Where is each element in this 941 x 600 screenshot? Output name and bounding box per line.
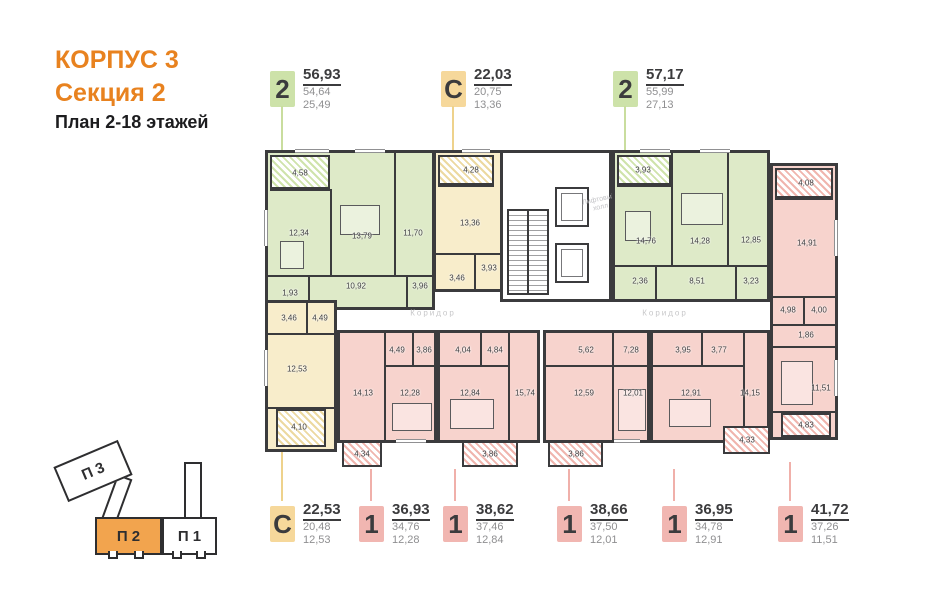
area-total: 56,93	[303, 66, 341, 86]
legend-apartment-studio-top[interactable]: С 22,03 20,75 13,36	[441, 66, 512, 111]
area-kitchen: 12,84	[476, 534, 514, 547]
apartment-areas: 36,93 34,76 12,28	[392, 501, 430, 546]
room-area: 14,15	[740, 389, 760, 398]
legend-apartment-1c[interactable]: 1 38,66 37,50 12,01	[557, 501, 628, 546]
leader-line	[281, 452, 283, 501]
apartment-type-badge: 2	[270, 71, 295, 107]
room-area: 13,79	[352, 232, 372, 241]
wall	[330, 189, 332, 275]
room-area: 14,91	[797, 239, 817, 248]
leader-line	[673, 469, 675, 501]
wall	[612, 333, 614, 440]
wall	[727, 153, 729, 265]
room-area: 12,53	[287, 365, 307, 374]
room-area: 3,77	[711, 346, 727, 355]
room-area: 3,86	[568, 450, 584, 459]
area-living: 20,48	[303, 521, 341, 534]
apartment-type-badge: 1	[662, 506, 687, 542]
apartment-areas: 56,93 54,64 25,49	[303, 66, 341, 111]
room-area: 12,28	[400, 389, 420, 398]
area-total: 22,53	[303, 501, 341, 521]
room-area: 4,49	[389, 346, 405, 355]
room-area: 4,33	[739, 436, 755, 445]
legend-apartment-1a[interactable]: 1 36,93 34,76 12,28	[359, 501, 430, 546]
area-living: 37,50	[590, 521, 628, 534]
area-kitchen: 13,36	[474, 99, 512, 112]
wall	[480, 333, 482, 365]
wall	[384, 365, 434, 367]
area-total: 38,62	[476, 501, 514, 521]
legend-apartment-studio-bottom[interactable]: С 22,53 20,48 12,53	[270, 501, 341, 546]
apartment-type-badge: С	[441, 71, 466, 107]
bed-furniture	[340, 205, 380, 235]
building-title: КОРПУС 3	[55, 44, 208, 77]
room-area: 3,46	[449, 274, 465, 283]
minimap-notch	[134, 551, 144, 559]
window	[264, 210, 268, 246]
minimap-notch	[108, 551, 118, 559]
area-living: 37,46	[476, 521, 514, 534]
wall	[773, 324, 835, 326]
room-area: 14,13	[353, 389, 373, 398]
stair-elevator-core	[500, 150, 612, 302]
room-area: 1,93	[282, 289, 298, 298]
area-living: 34,78	[695, 521, 733, 534]
minimap-section-p1[interactable]: П 1	[162, 517, 217, 555]
area-living: 37,26	[811, 521, 849, 534]
room-area: 4,28	[463, 166, 479, 175]
apartment-type-badge: 1	[778, 506, 803, 542]
bed-furniture	[681, 193, 723, 225]
room-area: 4,58	[292, 169, 308, 178]
wall	[436, 253, 508, 255]
wall	[546, 365, 647, 367]
room-area: 3,93	[481, 264, 497, 273]
legend-apartment-2a[interactable]: 2 56,93 54,64 25,49	[270, 66, 341, 111]
room-area: 3,86	[482, 450, 498, 459]
apartment-areas: 22,53 20,48 12,53	[303, 501, 341, 546]
section-title: Секция 2	[55, 77, 208, 110]
area-kitchen: 12,91	[695, 534, 733, 547]
window	[834, 220, 838, 256]
leader-line	[452, 106, 454, 150]
room-area: 4,98	[780, 306, 796, 315]
wall	[735, 265, 737, 299]
room-area: 2,36	[632, 277, 648, 286]
window	[295, 149, 329, 153]
room-area: 8,51	[689, 277, 705, 286]
wall	[653, 365, 743, 367]
room-area: 4,10	[291, 423, 307, 432]
apartment-1c-plan[interactable]: 5,62 7,28 12,59 12,01	[543, 330, 650, 443]
room-area: 4,84	[487, 346, 503, 355]
minimap-section-label: П 1	[178, 528, 201, 545]
apartment-2b-plan[interactable]: 3,93 14,76 14,28 12,85 2,36 8,51 3,23	[612, 150, 770, 302]
room-area: 12,59	[574, 389, 594, 398]
apartment-areas: 36,95 34,78 12,91	[695, 501, 733, 546]
room-area: 3,96	[412, 282, 428, 291]
wall	[671, 153, 673, 265]
apartment-type-badge: 1	[359, 506, 384, 542]
apartment-areas: 38,62 37,46 12,84	[476, 501, 514, 546]
leader-line	[624, 106, 626, 150]
wall	[440, 365, 508, 367]
minimap-notch	[196, 551, 206, 559]
area-kitchen: 12,53	[303, 534, 341, 547]
legend-apartment-1d[interactable]: 1 36,95 34,78 12,91	[662, 501, 733, 546]
minimap-section-p2[interactable]: П 2	[95, 517, 162, 555]
room-area: 10,92	[346, 282, 366, 291]
window	[396, 439, 426, 443]
room-area: 3,93	[635, 166, 651, 175]
apartment-studio-bottom-plan[interactable]: 3,46 4,49 12,53 4,10	[265, 300, 337, 452]
wall	[527, 209, 529, 295]
minimap-section-label: П 2	[117, 528, 140, 545]
minimap-connector	[184, 462, 202, 522]
bed-furniture	[781, 361, 813, 405]
window	[264, 350, 268, 386]
floors-subtitle: План 2-18 этажей	[55, 112, 208, 133]
apartment-type-badge: 1	[557, 506, 582, 542]
window	[640, 149, 670, 153]
wall	[743, 333, 745, 440]
bed-furniture	[392, 403, 432, 431]
window	[834, 360, 838, 396]
elevator-shaft	[555, 243, 589, 283]
area-kitchen: 12,28	[392, 534, 430, 547]
corridor-label: Коридор	[410, 309, 456, 318]
area-total: 36,95	[695, 501, 733, 521]
room-area: 4,34	[354, 450, 370, 459]
apartment-type-badge: 2	[613, 71, 638, 107]
wall	[412, 333, 414, 365]
area-kitchen: 27,13	[646, 99, 684, 112]
area-kitchen: 12,01	[590, 534, 628, 547]
wall	[306, 303, 308, 333]
room-area: 12,91	[681, 389, 701, 398]
wall	[438, 185, 494, 187]
corridor-label: Коридор	[642, 309, 688, 318]
table-furniture	[280, 241, 304, 269]
area-kitchen: 25,49	[303, 99, 341, 112]
apartment-type-badge: 1	[443, 506, 468, 542]
window	[700, 149, 730, 153]
apartment-1a-plan[interactable]: 14,13 4,49 3,86 12,28	[337, 330, 437, 443]
room-area: 11,70	[403, 229, 422, 238]
area-total: 41,72	[811, 501, 849, 521]
window	[462, 149, 490, 153]
area-living: 20,75	[474, 86, 512, 99]
area-living: 55,99	[646, 86, 684, 99]
wall	[394, 153, 396, 275]
room-area: 13,36	[460, 219, 480, 228]
minimap-section-label: П 3	[79, 459, 107, 484]
leader-line	[789, 462, 791, 501]
leader-line	[454, 469, 456, 501]
wall	[384, 333, 386, 440]
room-area: 14,76	[636, 237, 656, 246]
room-area: 4,08	[798, 179, 814, 188]
wall	[617, 185, 671, 187]
wall	[615, 265, 767, 267]
leader-line	[370, 469, 372, 501]
wall	[773, 346, 835, 348]
apartment-areas: 38,66 37,50 12,01	[590, 501, 628, 546]
room-area: 1,86	[798, 331, 814, 340]
page-title: КОРПУС 3 Секция 2 План 2-18 этажей	[55, 44, 208, 133]
room-area: 5,62	[578, 346, 594, 355]
bed-furniture	[450, 399, 494, 429]
room-area: 11,51	[811, 384, 830, 393]
wall	[270, 189, 330, 191]
area-total: 57,17	[646, 66, 684, 86]
leader-line	[281, 106, 283, 150]
legend-apartment-2b[interactable]: 2 57,17 55,99 27,13	[613, 66, 684, 111]
area-total: 22,03	[474, 66, 512, 86]
legend-apartment-1b[interactable]: 1 38,62 37,46 12,84	[443, 501, 514, 546]
area-living: 54,64	[303, 86, 341, 99]
room-area: 12,85	[741, 236, 761, 245]
room-area: 4,04	[455, 346, 471, 355]
apartment-areas: 22,03 20,75 13,36	[474, 66, 512, 111]
apartment-areas: 57,17 55,99 27,13	[646, 66, 684, 111]
minimap-notch	[172, 551, 182, 559]
apartment-1b-plan[interactable]: 4,04 4,84 12,84 15,74	[437, 330, 540, 443]
room-area: 4,00	[811, 306, 827, 315]
wall	[268, 333, 334, 335]
floorplan-page: КОРПУС 3 Секция 2 План 2-18 этажей 2 56,…	[0, 0, 941, 600]
room-area: 4,49	[312, 314, 328, 323]
wall	[803, 296, 805, 324]
window	[355, 149, 385, 153]
wall	[406, 275, 408, 307]
area-kitchen: 11,51	[811, 534, 849, 547]
area-total: 36,93	[392, 501, 430, 521]
room-area: 3,86	[416, 346, 432, 355]
area-living: 34,76	[392, 521, 430, 534]
room-area: 14,28	[690, 237, 710, 246]
wall	[508, 333, 510, 440]
leader-line	[568, 469, 570, 501]
apartment-type-badge: С	[270, 506, 295, 542]
room-area: 7,28	[623, 346, 639, 355]
window	[614, 439, 640, 443]
wall	[655, 265, 657, 299]
wall	[474, 253, 476, 289]
apartment-areas: 41,72 37,26 11,51	[811, 501, 849, 546]
bed-furniture	[669, 399, 711, 427]
room-area: 12,34	[289, 229, 309, 238]
area-total: 38,66	[590, 501, 628, 521]
wall	[775, 198, 833, 200]
room-area: 3,95	[675, 346, 691, 355]
room-area: 12,01	[623, 389, 643, 398]
apartment-2a-plan[interactable]: 4,58 12,34 13,79 11,70 10,92 1,93 3,96	[265, 150, 435, 310]
wall	[701, 333, 703, 365]
room-area: 3,46	[281, 314, 297, 323]
room-area: 15,74	[515, 389, 535, 398]
room-area: 4,83	[798, 421, 814, 430]
room-area: 12,84	[460, 389, 480, 398]
room-area: 3,23	[743, 277, 759, 286]
apartment-1e-plan[interactable]: 4,08 14,91 4,98 4,00 1,86 11,51 4,83	[770, 163, 838, 440]
legend-apartment-1e[interactable]: 1 41,72 37,26 11,51	[778, 501, 849, 546]
